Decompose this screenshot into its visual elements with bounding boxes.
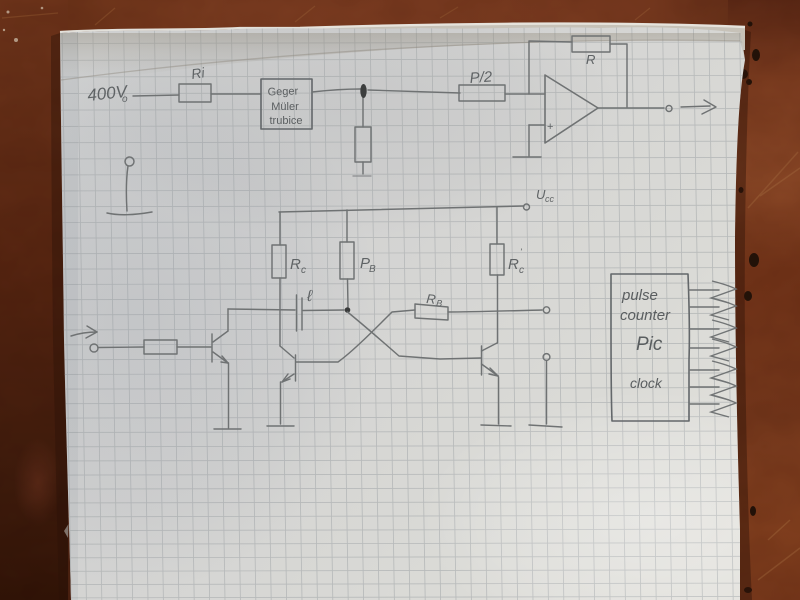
svg-text:Müler: Müler (271, 101, 299, 113)
svg-text:R: R (586, 52, 595, 67)
svg-text:R: R (290, 256, 301, 273)
svg-text:Geger: Geger (267, 85, 298, 98)
svg-text:ℓ: ℓ (306, 288, 313, 305)
svg-text:': ' (520, 247, 522, 257)
svg-text:B: B (436, 298, 443, 308)
svg-text:P/2: P/2 (469, 68, 493, 87)
svg-text:R: R (508, 256, 519, 273)
svg-text:counter: counter (620, 307, 671, 324)
svg-text:cc: cc (545, 194, 555, 204)
svg-text:+: + (547, 121, 553, 133)
svg-text:Pic: Pic (636, 334, 663, 355)
svg-text:c: c (519, 265, 524, 276)
svg-text:pulse: pulse (621, 287, 658, 304)
svg-text:trubice: trubice (269, 115, 302, 127)
svg-text:c: c (301, 265, 306, 276)
svg-text:R: R (426, 291, 437, 307)
svg-text:o: o (122, 94, 128, 105)
svg-text:B: B (369, 264, 376, 275)
svg-text:clock: clock (630, 375, 663, 391)
